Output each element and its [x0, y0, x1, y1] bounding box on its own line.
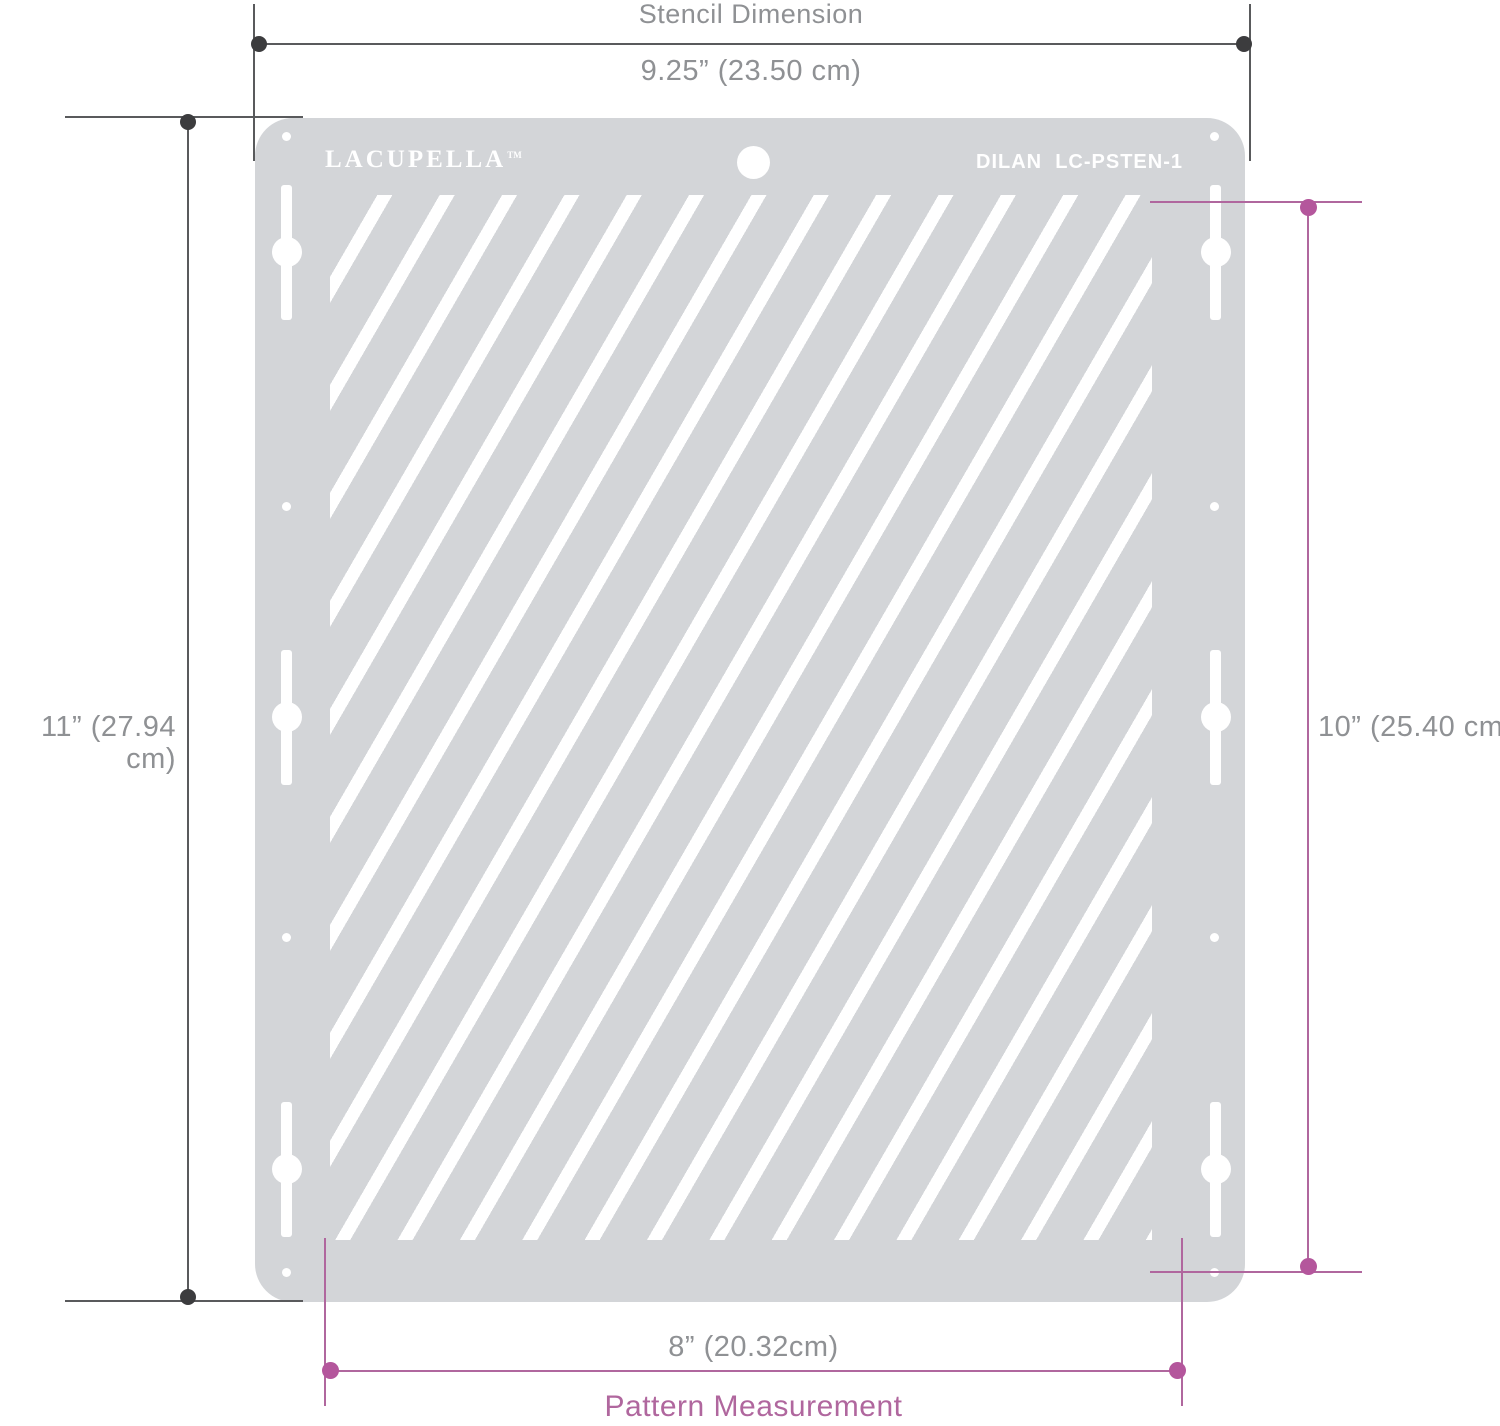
brand-text: LACUPELLA	[325, 146, 506, 173]
pattern-height-value: 10” (25.40 cm)	[1318, 712, 1500, 744]
edge-hole-right-lower	[1210, 933, 1219, 942]
model-number: DILAN LC-PSTEN-1	[976, 151, 1183, 174]
hanging-hole	[737, 146, 770, 179]
stencil-width-value: 9.25” (23.50 cm)	[258, 56, 1244, 88]
registration-slot-circle-right-bottom	[1201, 1154, 1231, 1184]
pattern-width-dimension-line	[330, 1370, 1177, 1372]
diagonal-stripe-pattern	[330, 195, 1152, 1240]
pattern-dimension-endpoint-dot	[1300, 199, 1317, 216]
registration-slot-circle-left-bottom	[272, 1154, 302, 1184]
width-dimension-line	[258, 43, 1244, 45]
height-dimension-line	[187, 121, 189, 1298]
pattern-extension-line-bottom-left	[324, 1238, 326, 1406]
dimension-endpoint-dot	[1236, 36, 1252, 52]
stencil-plate: LACUPELLATM DILAN LC-PSTEN-1	[255, 118, 1245, 1302]
extension-line-top-right	[1249, 4, 1251, 161]
registration-slot-circle-left-middle	[272, 702, 302, 732]
pattern-dimension-endpoint-dot	[322, 1362, 339, 1379]
edge-hole-top-left	[282, 132, 291, 141]
pattern-dimension-endpoint-dot	[1300, 1258, 1317, 1275]
registration-slot-circle-right-middle	[1201, 702, 1231, 732]
extension-line-top-left	[253, 4, 255, 161]
brand-logo: LACUPELLATM	[325, 146, 522, 174]
pattern-width-value: 8” (20.32cm)	[330, 1332, 1177, 1364]
registration-slot-circle-right-top	[1201, 237, 1231, 267]
stencil-height-value: 11” (27.94 cm)	[0, 712, 176, 776]
diagram-canvas: LACUPELLATM DILAN LC-PSTEN-1 Stencil Dim…	[0, 0, 1500, 1426]
edge-hole-right-upper	[1210, 502, 1219, 511]
edge-hole-left-lower	[282, 933, 291, 942]
registration-slot-circle-left-top	[272, 237, 302, 267]
pattern-dimension-endpoint-dot	[1169, 1362, 1186, 1379]
dimension-endpoint-dot	[180, 1289, 196, 1305]
stencil-dimension-title: Stencil Dimension	[258, 0, 1244, 30]
edge-hole-bottom-left	[282, 1268, 291, 1277]
pattern-extension-line-right-top	[1150, 201, 1362, 203]
pattern-height-dimension-line	[1307, 207, 1309, 1267]
trademark-symbol: TM	[507, 150, 522, 160]
dimension-endpoint-dot	[251, 36, 267, 52]
pattern-measurement-title: Pattern Measurement	[330, 1390, 1177, 1423]
edge-hole-left-upper	[282, 502, 291, 511]
pattern-extension-line-bottom-right	[1181, 1238, 1183, 1406]
edge-hole-top-right	[1210, 132, 1219, 141]
dimension-endpoint-dot	[180, 114, 196, 130]
